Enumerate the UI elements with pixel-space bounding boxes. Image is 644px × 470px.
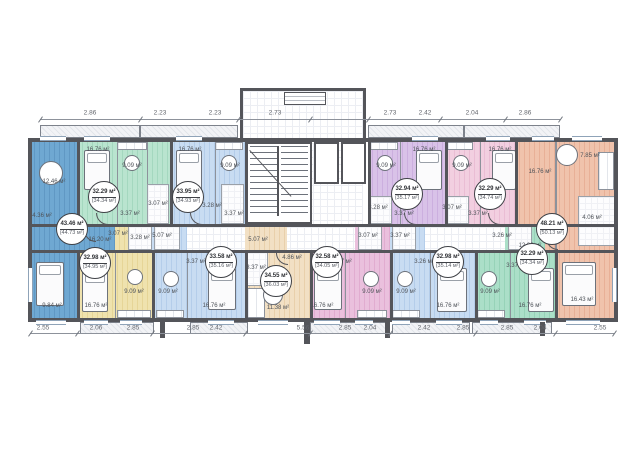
apartment-area-value: 32.94 м²	[395, 186, 418, 195]
dimension-label: 2.42	[210, 325, 223, 332]
entrance-wall	[363, 88, 366, 141]
dimension-label: 2.23	[154, 110, 167, 117]
dimension-line	[40, 119, 560, 120]
kitchen-counter	[370, 142, 398, 150]
window	[258, 320, 288, 325]
room-area-label: 16.20 м²	[89, 237, 112, 243]
room-area-label: 3.37 м²	[468, 211, 487, 217]
room-area-label: 9.09 м²	[396, 289, 415, 295]
kitchen-counter	[447, 142, 473, 150]
room-area-label: 4.06 м²	[582, 215, 601, 221]
kitchen-counter	[156, 310, 184, 318]
kitchen-counter	[117, 310, 151, 318]
room-area-label: 12.46 м²	[43, 179, 66, 185]
unit-divider-wall	[390, 252, 393, 320]
unit-divider-wall	[368, 140, 371, 226]
apartment-total-area-value: (35.17 м²)	[395, 195, 420, 202]
apartment-total-area-value: (34.34 м²)	[520, 260, 545, 267]
window	[480, 320, 498, 325]
room-area-label: 16.76 м²	[519, 303, 542, 309]
room-area-label: 5.07 м²	[248, 237, 267, 243]
window	[84, 136, 110, 141]
apartment-area-value: 32.98 м²	[436, 254, 459, 263]
interior-wall	[215, 140, 216, 226]
room-area-label: 3.37 м²	[224, 211, 243, 217]
table-icon	[127, 269, 143, 285]
apartment-total-area-value: (34.93 м²)	[176, 198, 201, 205]
dimension-label: 2.55	[594, 325, 607, 332]
entrance-wall	[240, 88, 366, 91]
room-area-label: 9.09 м²	[376, 163, 395, 169]
room-area-label: 16.76 м²	[203, 303, 226, 309]
apartment-area-badge: 32.29 м²(34.34 м²)	[88, 181, 120, 213]
room-area-label: 3.28 м²	[202, 203, 221, 209]
dimension-label: 2.55	[37, 325, 50, 332]
unit-divider-wall	[170, 140, 173, 226]
table-icon	[481, 271, 497, 287]
room-area-label: 16.76 м²	[87, 147, 110, 153]
unit-divider-wall	[445, 140, 448, 226]
room-area-label: 3.37 м²	[120, 211, 139, 217]
interior-wall	[115, 252, 116, 320]
window	[392, 320, 410, 325]
dimension-label: 2.73	[269, 110, 282, 117]
room-area-label: 16.76 м²	[489, 147, 512, 153]
room-area-label: 16.76 м²	[437, 303, 460, 309]
room-area-label: 3.28 м²	[130, 235, 149, 241]
apartment-area-badge: 32.29 м²(34.34 м²)	[516, 243, 548, 275]
unit-divider-wall	[475, 252, 478, 320]
kitchen-counter	[357, 310, 387, 318]
apartment-area-badge: 34.55 м²(36.03 м²)	[260, 265, 292, 297]
table-icon	[163, 271, 179, 287]
room-area-label: 3.37 м²	[394, 211, 413, 217]
apartment-total-area-value: (50.13 м²)	[540, 230, 565, 237]
window	[612, 268, 617, 302]
room-area-label: 16.76 м²	[311, 303, 334, 309]
pillow-icon	[179, 153, 199, 163]
unit-divider-wall	[245, 252, 248, 320]
apartment-total-area-value: (34.74 м²)	[478, 195, 503, 202]
pillow-icon	[87, 153, 107, 163]
room-area-label: 3.37 м²	[186, 259, 205, 265]
dimension-label: 2.86	[84, 110, 97, 117]
room-area-label: 9.09 м²	[362, 289, 381, 295]
pillow-icon	[565, 265, 593, 275]
apartment-area-badge: 32.29 м²(34.74 м²)	[474, 178, 506, 210]
room-area-label: 9.09 м²	[480, 289, 499, 295]
dimension-tick-icon	[612, 330, 617, 336]
room-area-label: 3.07 м²	[358, 233, 377, 239]
kitchen-counter	[215, 142, 243, 150]
apartment-area-value: 32.58 м²	[315, 254, 338, 263]
apartment-area-value: 43.46 м²	[60, 221, 83, 230]
window	[572, 136, 602, 141]
apartment-area-badge: 33.95 м²(34.93 м²)	[172, 181, 204, 213]
window	[28, 268, 33, 302]
apartment-area-value: 32.29 м²	[92, 189, 115, 198]
stair-treads-icon	[281, 146, 308, 216]
pillow-icon	[419, 153, 439, 163]
room-area-label: 9.09 м²	[452, 163, 471, 169]
apartment-area-badge: 32.98 м²(34.95 м²)	[79, 247, 111, 279]
window	[532, 136, 554, 141]
interior-wall	[117, 140, 118, 226]
pillow-icon	[39, 265, 61, 275]
dimension-label: 2.42	[418, 325, 431, 332]
elevator-shaft	[341, 142, 366, 184]
dimension-label: 2.04	[364, 325, 377, 332]
room-area-label: 4.36 м²	[32, 213, 51, 219]
apartment-area-badge: 32.94 м²(35.17 м²)	[391, 178, 423, 210]
apartment-area-value: 32.29 м²	[520, 251, 543, 260]
room-area-label: 3.07 м²	[442, 205, 461, 211]
room-area-label: 9.09 м²	[220, 163, 239, 169]
room-area-label: 3.37 м²	[390, 233, 409, 239]
room-area-label: 9.09 м²	[158, 289, 177, 295]
dimension-label: 2.04	[466, 110, 479, 117]
apartment-total-area-value: (34.34 м²)	[92, 198, 117, 205]
room-area-label: 16.76 м²	[529, 169, 552, 175]
dimension-label: 2.85	[187, 325, 200, 332]
dimension-label: 2.73	[384, 110, 397, 117]
table-icon	[397, 271, 413, 287]
room-area-label: 16.76 м²	[413, 147, 436, 153]
kitchen-counter	[598, 152, 614, 190]
pillow-icon	[495, 153, 513, 163]
room-area-label: 3.26 м²	[492, 233, 511, 239]
room-area-label: 9.84 м²	[42, 303, 61, 309]
apartment-total-area-value: (34.05 м²)	[315, 263, 340, 270]
dimension-label: 2.06	[90, 325, 103, 332]
dimension-label: 2.86	[519, 110, 532, 117]
apartment-total-area-value: (36.03 м²)	[264, 282, 289, 289]
apartment-area-value: 34.55 м²	[264, 273, 287, 282]
apartment-total-area-value: (35.16 м²)	[209, 263, 234, 270]
room-area-label: 11.38 м²	[267, 305, 289, 311]
room-area-label: 9.09 м²	[122, 163, 141, 169]
dimension-label: 2.42	[419, 110, 432, 117]
apartment-total-area-value: (34.95 м²)	[83, 264, 108, 271]
entrance-steps-icon	[284, 92, 326, 105]
dimension-label: 2.85	[127, 325, 140, 332]
kitchen-counter	[392, 310, 420, 318]
window	[40, 136, 66, 141]
apartment-area-badge: 32.58 м²(34.05 м²)	[311, 246, 343, 278]
kitchen-counter	[477, 310, 505, 318]
apartment-area-value: 32.98 м²	[83, 255, 106, 264]
dimension-label: 2.85	[457, 325, 470, 332]
unit-divider-wall	[555, 252, 558, 320]
window	[412, 136, 438, 141]
dimension-label: 2.23	[209, 110, 222, 117]
room-area-label: 3.07 м²	[108, 231, 127, 237]
apartment-total-area-value: (44.73 м²)	[60, 230, 85, 237]
room-area-label: 3.28 м²	[368, 205, 387, 211]
dimension-line	[30, 333, 614, 334]
room-area-label: 16.76 м²	[85, 303, 108, 309]
apartment-area-value: 33.95 м²	[176, 189, 199, 198]
floor-plan-canvas: 12.46 м²4.36 м²16.20 м²9.84 м²16.76 м²9.…	[0, 0, 644, 470]
table-icon	[556, 144, 578, 166]
window	[314, 320, 340, 325]
table-icon	[363, 271, 379, 287]
room-area-label: 9.09 м²	[124, 289, 143, 295]
kitchen-counter	[117, 142, 147, 150]
bathroom	[578, 196, 616, 246]
room-area-label: 3.07 м²	[148, 201, 167, 207]
apartment-area-value: 48.21 м²	[540, 221, 563, 230]
dimension-label: 2.04	[534, 325, 547, 332]
bathroom	[221, 184, 244, 224]
room-area-label: 3.26 м²	[414, 259, 433, 265]
window	[176, 136, 202, 141]
apartment-area-value: 32.29 м²	[478, 186, 501, 195]
apartment-area-badge: 48.21 м²(50.13 м²)	[536, 213, 568, 245]
room-area-label: 4.86 м²	[282, 255, 301, 261]
dimension-label: 5.56	[297, 325, 310, 332]
wall	[28, 224, 618, 227]
bed-icon	[36, 262, 64, 306]
apartment-area-badge: 32.98 м²(35.14 м²)	[432, 246, 464, 278]
dimension-label: 2.85	[339, 325, 352, 332]
window	[486, 136, 510, 141]
unit-divider-wall	[152, 252, 155, 320]
room-area-label: 5.07 м²	[152, 233, 171, 239]
room-area-label: 16.43 м²	[571, 297, 594, 303]
room-area-label: 7.85 м²	[580, 153, 599, 159]
apartment-area-badge: 33.58 м²(35.16 м²)	[205, 246, 237, 278]
entrance-wall	[240, 88, 243, 141]
elevator-shaft	[314, 142, 339, 184]
apartment-area-value: 33.58 м²	[209, 254, 232, 263]
unit-divider-wall	[515, 140, 518, 226]
apartment-total-area-value: (35.14 м²)	[436, 263, 461, 270]
dimension-tick-icon	[558, 116, 563, 122]
wall-stub	[160, 322, 165, 338]
apartment-area-badge: 43.46 м²(44.73 м²)	[56, 213, 88, 245]
dimension-label: 2.85	[501, 325, 514, 332]
room-area-label: 16.76 м²	[179, 147, 202, 153]
